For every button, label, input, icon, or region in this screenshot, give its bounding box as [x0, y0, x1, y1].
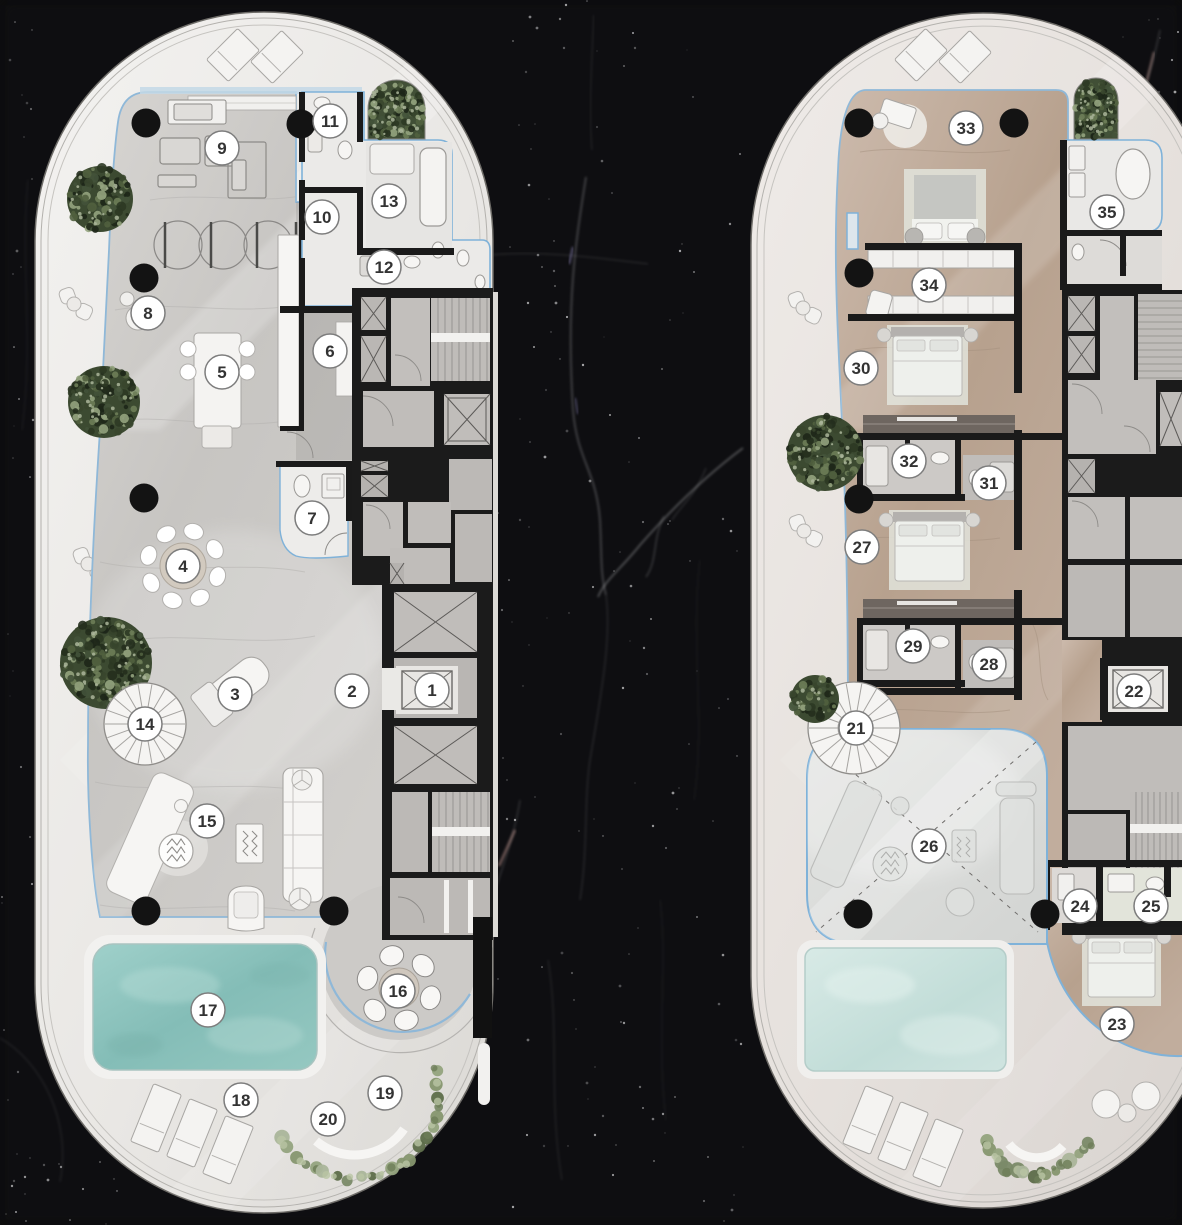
svg-text:9: 9: [217, 139, 226, 158]
svg-text:14: 14: [136, 715, 155, 734]
svg-text:27: 27: [853, 538, 872, 557]
svg-text:2: 2: [347, 682, 356, 701]
svg-text:26: 26: [920, 837, 939, 856]
svg-text:1: 1: [427, 681, 436, 700]
svg-text:17: 17: [199, 1001, 218, 1020]
svg-text:3: 3: [230, 685, 239, 704]
svg-text:13: 13: [380, 192, 399, 211]
svg-text:10: 10: [313, 208, 332, 227]
svg-text:32: 32: [900, 452, 919, 471]
svg-text:11: 11: [321, 112, 339, 131]
svg-text:12: 12: [375, 258, 394, 277]
svg-text:23: 23: [1108, 1015, 1127, 1034]
svg-text:7: 7: [307, 509, 316, 528]
svg-text:16: 16: [389, 982, 408, 1001]
svg-text:8: 8: [143, 304, 152, 323]
svg-text:19: 19: [376, 1084, 395, 1103]
svg-text:4: 4: [178, 557, 188, 576]
svg-text:18: 18: [232, 1091, 251, 1110]
svg-text:29: 29: [904, 637, 923, 656]
svg-text:33: 33: [957, 119, 976, 138]
svg-text:22: 22: [1125, 682, 1144, 701]
svg-text:34: 34: [920, 276, 939, 295]
svg-text:20: 20: [319, 1110, 338, 1129]
svg-text:31: 31: [980, 474, 999, 493]
svg-text:5: 5: [217, 363, 226, 382]
svg-text:15: 15: [198, 812, 217, 831]
svg-text:25: 25: [1142, 897, 1161, 916]
svg-text:6: 6: [325, 342, 334, 361]
svg-text:24: 24: [1071, 897, 1090, 916]
svg-text:28: 28: [980, 655, 999, 674]
svg-text:30: 30: [852, 359, 871, 378]
svg-text:21: 21: [847, 719, 866, 738]
svg-text:35: 35: [1098, 203, 1117, 222]
